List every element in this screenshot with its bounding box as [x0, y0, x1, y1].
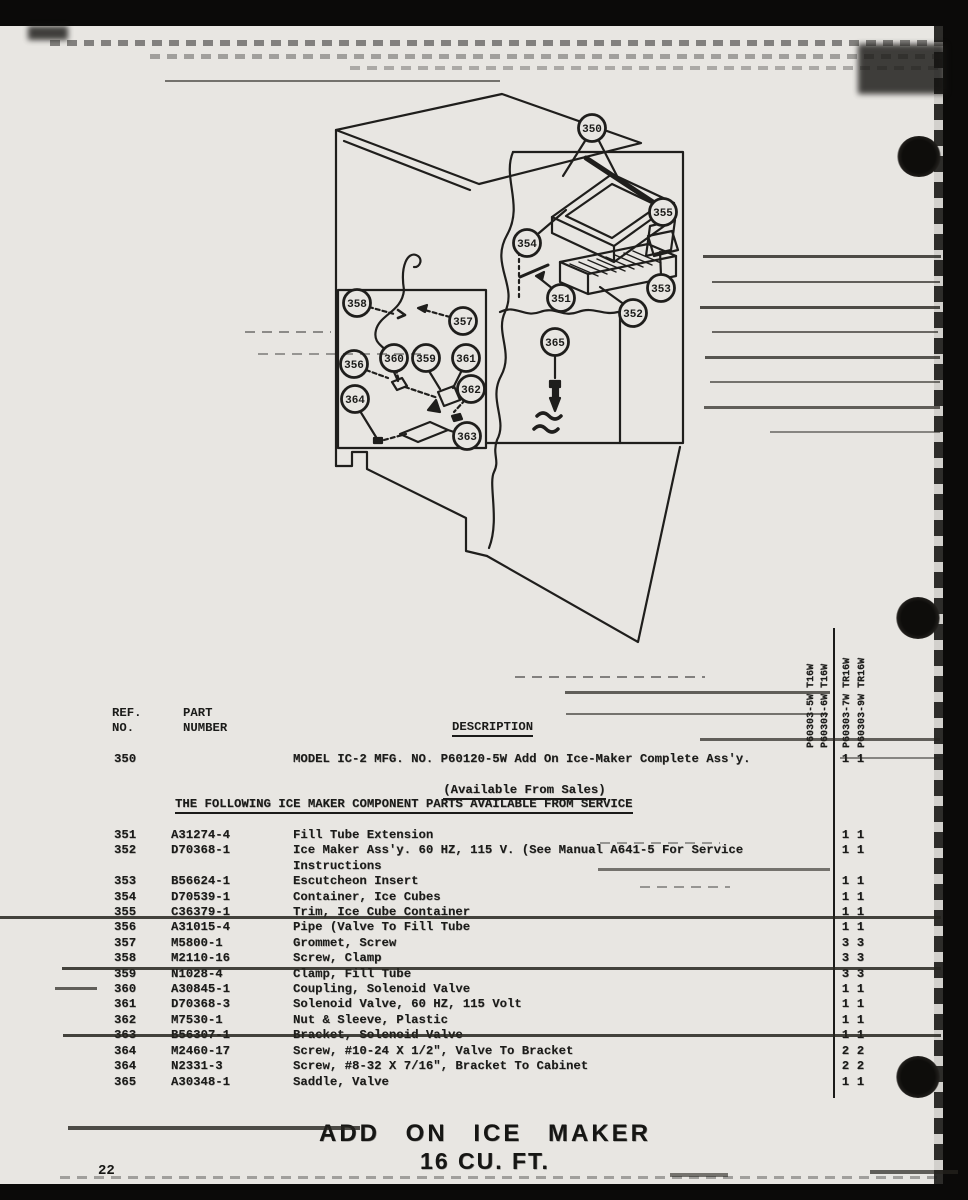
ref-cell: 356	[108, 920, 171, 935]
ref-cell: 353	[108, 874, 171, 889]
scan-streak	[712, 281, 940, 283]
qty-cell: 1	[838, 997, 853, 1012]
part-cell: D70368-3	[171, 997, 293, 1012]
scan-streak	[840, 757, 940, 759]
qty-cell: 1	[853, 828, 868, 843]
desc-cell: Saddle, Valve	[293, 1075, 838, 1090]
desc-cell: Pipe (Valve To Fill Tube	[293, 920, 838, 935]
part-cell: M7530-1	[171, 1013, 293, 1028]
desc-cell: Grommet, Screw	[293, 936, 838, 951]
table-row: 358M2110-16Screw, Clamp33	[108, 951, 868, 966]
intro-row: 350 MODEL IC-2 MFG. NO. P60120-5W Add On…	[108, 752, 868, 800]
scan-streak	[700, 306, 940, 309]
callout-351: 351	[548, 285, 575, 312]
qty-cell: 1	[853, 890, 868, 905]
qty-cell: 2	[853, 1044, 868, 1059]
scan-streak	[60, 1176, 940, 1179]
desc-cell: Fill Tube Extension	[293, 828, 838, 843]
qty-cell: 1	[853, 1075, 868, 1090]
part-cell: A31274-4	[171, 828, 293, 843]
svg-text:356: 356	[344, 360, 364, 372]
desc-cell: Escutcheon Insert	[293, 874, 838, 889]
scan-streak	[710, 381, 940, 383]
qty-cell: 1	[838, 890, 853, 905]
svg-text:364: 364	[345, 395, 365, 407]
table-row: 356A31015-4Pipe (Valve To Fill Tube11	[108, 920, 868, 935]
scan-streak	[712, 331, 938, 333]
model-column-header: P60303-7W TR16W	[842, 658, 853, 748]
scan-streak	[55, 987, 97, 990]
qty-cell: 3	[853, 936, 868, 951]
callout-362: 362	[458, 376, 485, 403]
svg-text:352: 352	[623, 309, 643, 321]
desc-cell: Solenoid Valve, 60 HZ, 115 Volt	[293, 997, 838, 1012]
ref-cell: 364	[108, 1059, 171, 1074]
callout-359: 359	[413, 345, 440, 372]
callout-350: 350	[579, 115, 606, 142]
qty-cell: 2	[853, 1059, 868, 1074]
desc-cell: Coupling, Solenoid Valve	[293, 982, 838, 997]
part-cell: M2460-17	[171, 1044, 293, 1059]
desc-cell: Container, Ice Cubes	[293, 890, 838, 905]
callout-363: 363	[454, 423, 481, 450]
scan-streak	[515, 676, 705, 678]
qty-cell: 2	[838, 1059, 853, 1074]
qty-cell: 2	[838, 1044, 853, 1059]
svg-text:357: 357	[453, 317, 473, 329]
svg-text:355: 355	[653, 208, 673, 220]
table-row: 357M5800-1Grommet, Screw33	[108, 936, 868, 951]
callout-361: 361	[453, 345, 480, 372]
scan-streak	[705, 356, 940, 359]
ref-cell: 362	[108, 1013, 171, 1028]
qty-cell: 1	[853, 843, 868, 874]
callout-364: 364	[342, 386, 369, 413]
ref-cell: 364	[108, 1044, 171, 1059]
scan-streak	[68, 1126, 360, 1130]
desc-cell: Nut & Sleeve, Plastic	[293, 1013, 838, 1028]
svg-text:362: 362	[461, 385, 481, 397]
scan-streak	[62, 967, 941, 970]
svg-text:361: 361	[456, 354, 476, 366]
ref-cell: 365	[108, 1075, 171, 1090]
scan-streak	[63, 1034, 941, 1037]
callout-358: 358	[344, 290, 371, 317]
callout-353: 353	[648, 275, 675, 302]
qty-cell: 1	[853, 752, 868, 800]
callout-357: 357	[450, 308, 477, 335]
scanned-manual-page: { "colors": {"paper": "#e8e6e2", "ink": …	[0, 0, 968, 1200]
ref-cell: 352	[108, 843, 171, 874]
part-cell: D70539-1	[171, 890, 293, 905]
table-row: 360A30845-1Coupling, Solenoid Valve11	[108, 982, 868, 997]
part-cell: N2331-3	[171, 1059, 293, 1074]
desc-cell: Screw, #8-32 X 7/16", Bracket To Cabinet	[293, 1059, 838, 1074]
scan-streak	[700, 738, 940, 741]
page-subtitle: 16 CU. FT.	[285, 1148, 685, 1175]
desc-cell: Screw, Clamp	[293, 951, 838, 966]
col-header-ref: REF. NO.	[112, 706, 142, 736]
scan-streak	[704, 406, 940, 409]
ref-cell: 351	[108, 828, 171, 843]
qty-cell: 1	[838, 920, 853, 935]
scan-streak	[598, 868, 830, 871]
scan-streak	[870, 1170, 958, 1174]
table-row: 361D70368-3Solenoid Valve, 60 HZ, 115 Vo…	[108, 997, 868, 1012]
part-cell: A30845-1	[171, 982, 293, 997]
desc-cell: Screw, #10-24 X 1/2", Valve To Bracket	[293, 1044, 838, 1059]
desc-cell: MODEL IC-2 MFG. NO. P60120-5W Add On Ice…	[293, 752, 838, 800]
qty-cell: 1	[838, 1075, 853, 1090]
scan-streak	[640, 886, 730, 888]
qty-cell: 1	[853, 1013, 868, 1028]
section-heading: THE FOLLOWING ICE MAKER COMPONENT PARTS …	[175, 797, 633, 814]
part-cell: A31015-4	[171, 920, 293, 935]
qty-cell: 1	[853, 920, 868, 935]
scan-streak	[565, 691, 830, 694]
ref-cell: 354	[108, 890, 171, 905]
svg-text:350: 350	[582, 124, 602, 136]
scan-streak	[0, 916, 941, 919]
svg-text:359: 359	[416, 354, 436, 366]
part-cell	[171, 752, 293, 800]
table-row: 364N2331-3Screw, #8-32 X 7/16", Bracket …	[108, 1059, 868, 1074]
ref-cell: 350	[108, 752, 171, 800]
qty-cell: 3	[838, 951, 853, 966]
ref-cell: 358	[108, 951, 171, 966]
table-row: 364M2460-17Screw, #10-24 X 1/2", Valve T…	[108, 1044, 868, 1059]
scan-blob	[896, 1056, 940, 1098]
svg-text:353: 353	[651, 284, 671, 296]
ref-cell: 360	[108, 982, 171, 997]
scan-streak	[245, 331, 331, 333]
model-column-header: P60303-9W TR16W	[857, 658, 868, 748]
qty-cell: 1	[853, 997, 868, 1012]
col-header-description: DESCRIPTION	[452, 720, 533, 737]
qty-cell: 3	[853, 951, 868, 966]
callout-355: 355	[650, 199, 677, 226]
callout-354: 354	[514, 230, 541, 257]
part-cell: M5800-1	[171, 936, 293, 951]
table-row: 362M7530-1Nut & Sleeve, Plastic11	[108, 1013, 868, 1028]
saddle-valve-parts	[534, 381, 561, 432]
part-cell: B56624-1	[171, 874, 293, 889]
desc-text: MODEL IC-2 MFG. NO. P60120-5W Add On Ice…	[293, 752, 751, 766]
qty-cell: 1	[838, 828, 853, 843]
svg-text:358: 358	[347, 299, 367, 311]
part-cell: D70368-1	[171, 843, 293, 874]
scan-streak	[566, 713, 828, 715]
exploded-diagram: 3503543553533513523653583573563643603593…	[0, 0, 968, 680]
scan-streak	[165, 80, 500, 82]
qty-cell: 1	[838, 1013, 853, 1028]
ref-cell: 361	[108, 997, 171, 1012]
part-cell: M2110-16	[171, 951, 293, 966]
callout-360: 360	[381, 345, 408, 372]
model-column-header: P60303-6W T16W	[820, 664, 831, 748]
scan-streak	[258, 353, 423, 355]
qty-cell: 1	[838, 874, 853, 889]
part-cell: A30348-1	[171, 1075, 293, 1090]
page-title: ADD ON ICE MAKER	[285, 1120, 685, 1148]
qty-cell: 1	[838, 982, 853, 997]
svg-text:351: 351	[551, 294, 571, 306]
svg-text:354: 354	[517, 239, 537, 251]
scan-streak	[600, 842, 720, 844]
scan-streak	[50, 40, 943, 46]
table-row: 354D70539-1Container, Ice Cubes11	[108, 890, 868, 905]
qty-cell: 1	[853, 982, 868, 997]
model-column-header: P60303-5W T16W	[806, 664, 817, 748]
callout-352: 352	[620, 300, 647, 327]
svg-text:365: 365	[545, 338, 565, 350]
svg-text:360: 360	[384, 354, 404, 366]
table-row: 353B56624-1Escutcheon Insert11	[108, 874, 868, 889]
callout-365: 365	[542, 329, 569, 356]
svg-text:363: 363	[457, 432, 477, 444]
col-header-part: PART NUMBER	[183, 706, 227, 736]
qty-cell: 1	[838, 843, 853, 874]
ref-cell: 357	[108, 936, 171, 951]
table-row: 351A31274-4Fill Tube Extension11	[108, 828, 868, 843]
table-row: 365A30348-1Saddle, Valve11	[108, 1075, 868, 1090]
qty-cell: 1	[838, 752, 853, 800]
qty-cell: 1	[853, 874, 868, 889]
scan-streak	[350, 66, 943, 70]
scan-streak	[703, 255, 941, 258]
qty-cell: 3	[838, 936, 853, 951]
scan-streak	[150, 54, 943, 59]
scan-streak	[770, 431, 940, 433]
callout-host: 3503543553533513523653583573563643603593…	[341, 115, 677, 450]
